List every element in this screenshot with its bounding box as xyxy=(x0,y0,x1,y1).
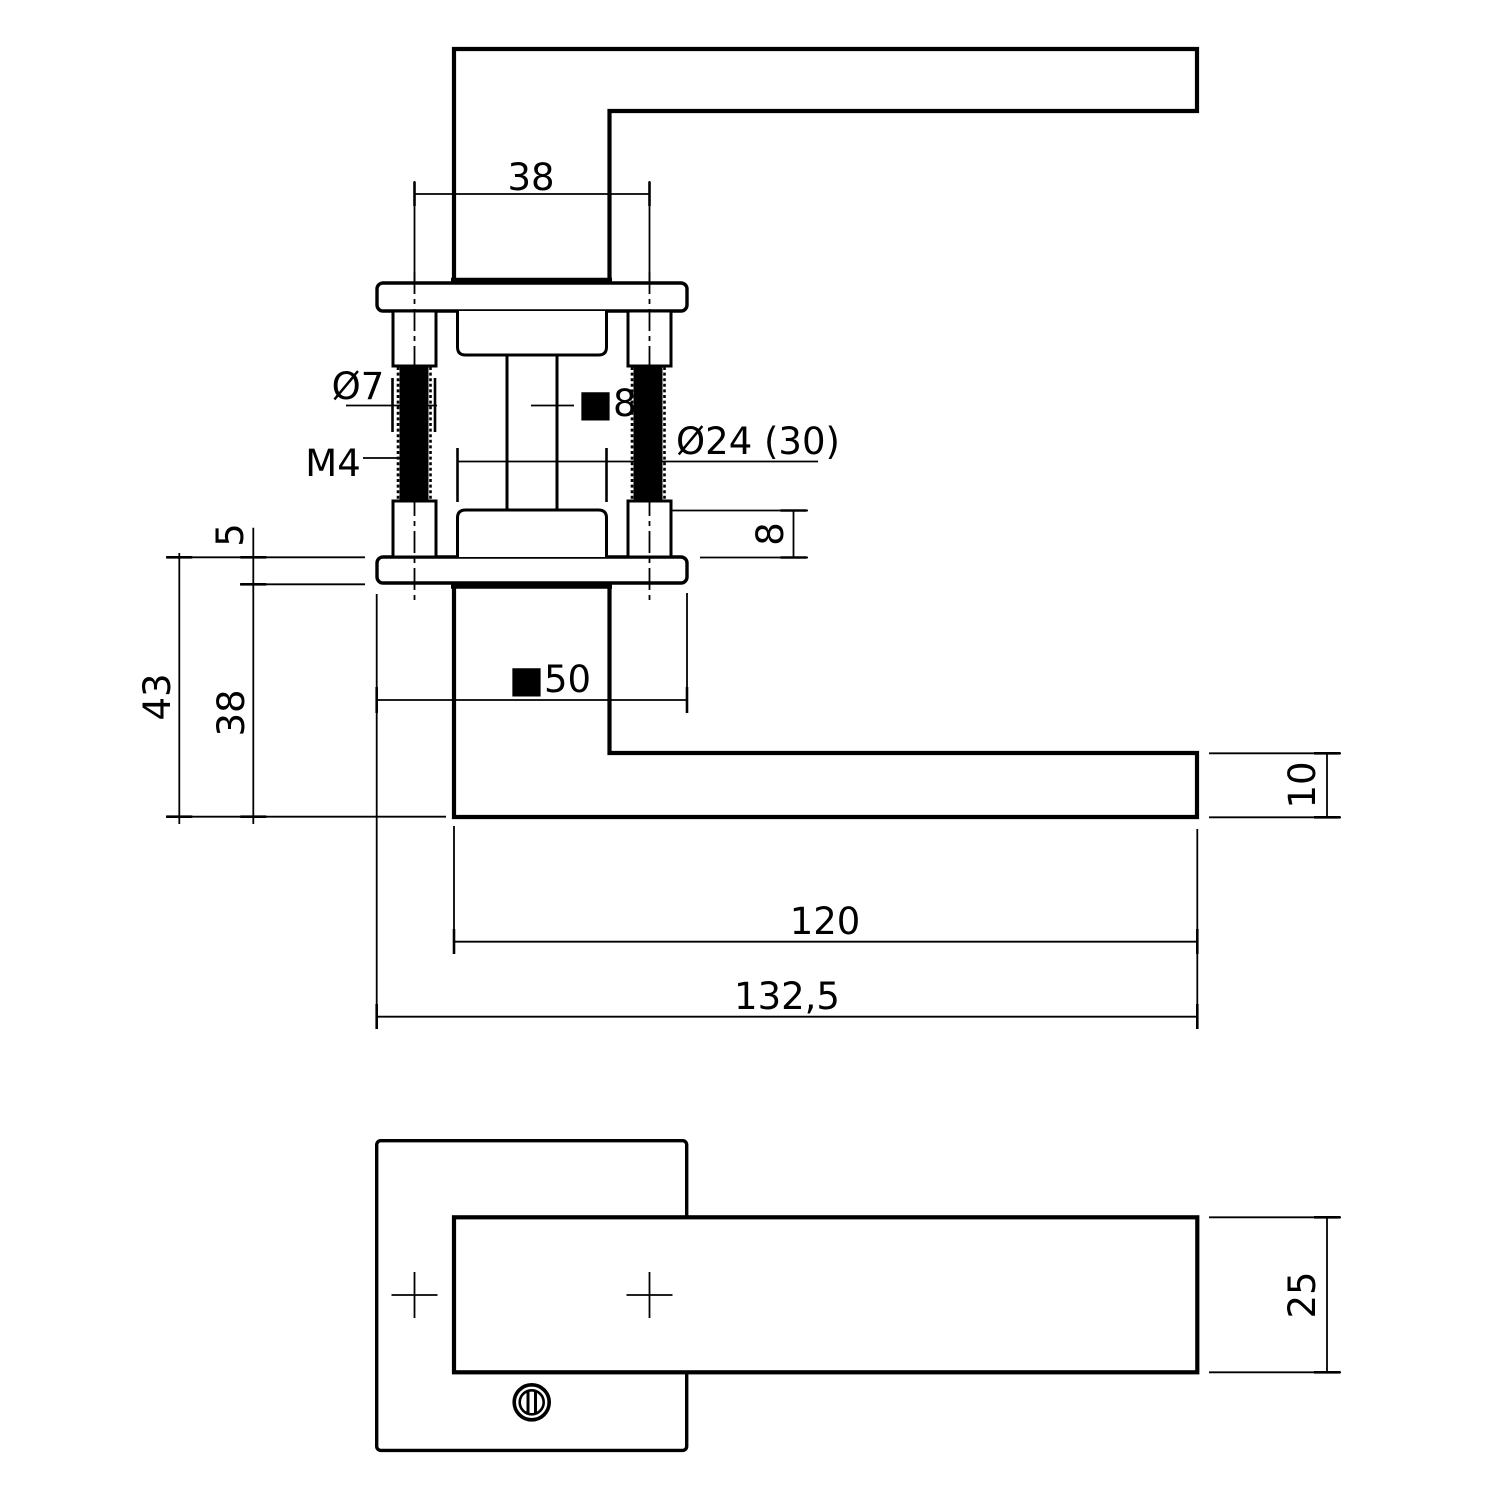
dim-label-screw-spacing: 38 xyxy=(507,156,554,199)
dim-label-rose-square: ■50 xyxy=(509,658,591,701)
bearing-collar-upper xyxy=(458,311,607,355)
dim-label-rose-thickness: 5 xyxy=(209,523,252,547)
threaded-rod-right xyxy=(634,366,663,501)
dim-label-lever-width: 25 xyxy=(1281,1271,1324,1318)
dim-label-sleeve-diameter: Ø7 xyxy=(332,365,385,408)
dimension-collar-height: 8 xyxy=(672,511,808,558)
slotted-screw-icon xyxy=(514,1385,549,1420)
upper-lever xyxy=(454,49,1197,281)
rose-plate-lower xyxy=(377,557,687,583)
dimension-rose-square: ■50 xyxy=(377,593,687,713)
dimension-spindle-size: ■8 xyxy=(531,382,637,425)
threaded-rod-left xyxy=(400,366,429,501)
dimension-thread-size: M4 xyxy=(305,442,400,485)
door-handle-drawing: Ø7 Ø24 (30) xyxy=(0,0,1500,1500)
side-view: Ø7 Ø24 (30) xyxy=(136,49,1341,1029)
technical-drawing-page: Ø7 Ø24 (30) xyxy=(0,0,1500,1500)
dimension-lever-width: 25 xyxy=(1209,1217,1341,1372)
dim-label-body-height: 38 xyxy=(210,689,253,736)
dimension-total-length: 132,5 xyxy=(377,594,1198,1029)
dim-label-total-projection: 43 xyxy=(136,673,179,720)
dimension-lever-thickness: 10 xyxy=(1209,753,1341,817)
dimension-screw-spacing: 38 xyxy=(415,156,650,281)
dim-label-collar-height: 8 xyxy=(749,522,792,546)
lever-plan xyxy=(454,1217,1197,1372)
dim-label-spindle-size: ■8 xyxy=(578,382,637,425)
dim-label-rose-diameter: Ø24 (30) xyxy=(676,420,840,463)
bearing-collar-lower xyxy=(458,510,607,557)
dim-label-thread-size: M4 xyxy=(305,442,360,485)
dim-label-lever-thickness: 10 xyxy=(1281,761,1324,808)
dim-label-total-length: 132,5 xyxy=(734,975,840,1018)
dim-label-lever-length: 120 xyxy=(790,900,861,943)
top-view: 25 xyxy=(377,1141,1341,1451)
rose-plate-upper xyxy=(377,283,687,311)
lower-lever xyxy=(454,586,1197,817)
